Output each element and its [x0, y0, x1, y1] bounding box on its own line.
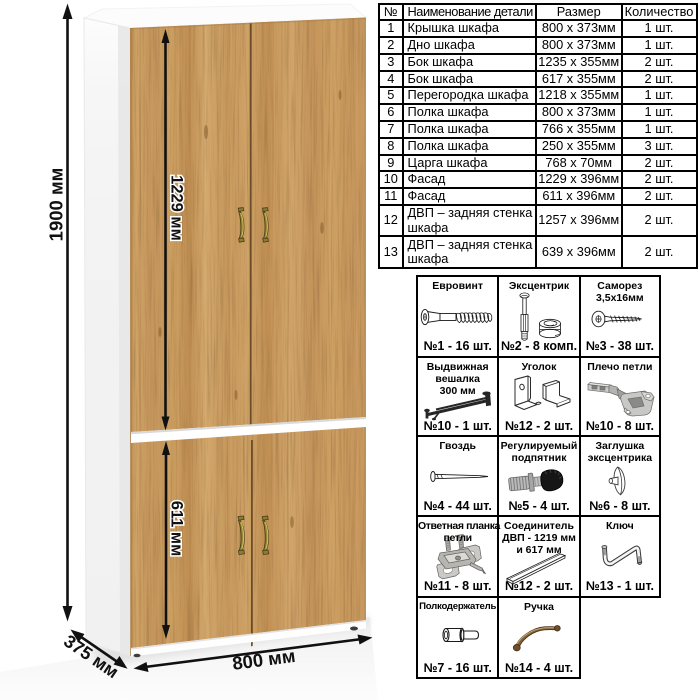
- svg-text:1229 мм: 1229 мм: [168, 175, 186, 241]
- svg-text:1900 мм: 1900 мм: [45, 168, 66, 242]
- svg-text:611 мм: 611 мм: [168, 501, 186, 557]
